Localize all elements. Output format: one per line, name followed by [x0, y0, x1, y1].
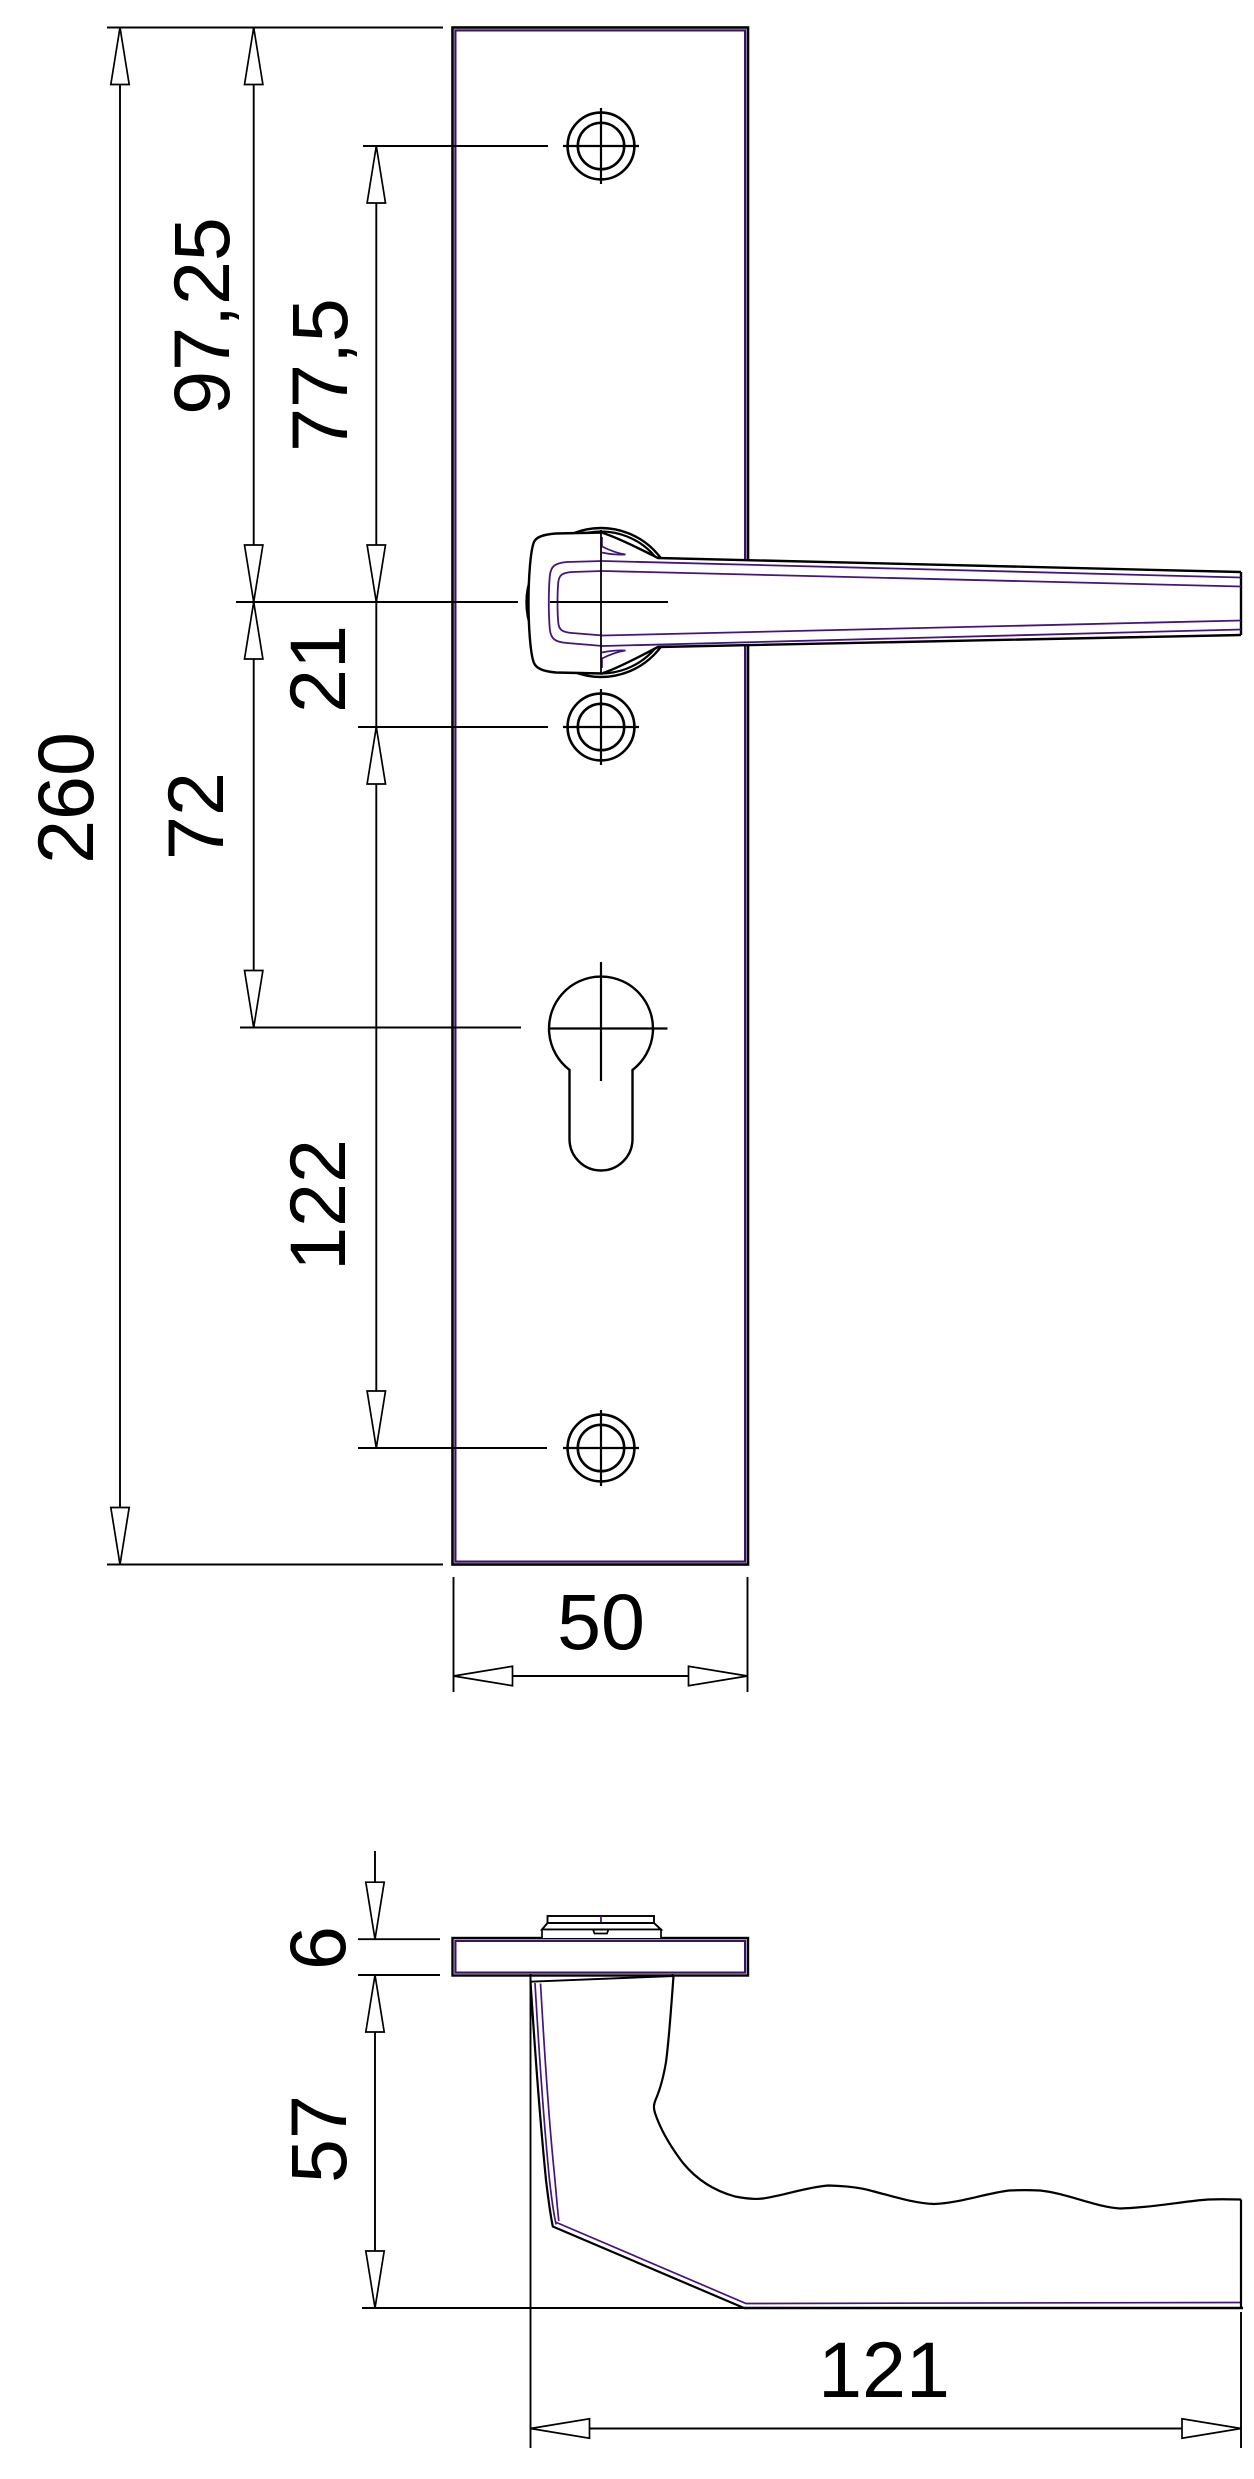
- svg-text:21: 21: [273, 625, 362, 713]
- svg-text:260: 260: [21, 732, 110, 864]
- svg-text:57: 57: [274, 2095, 363, 2183]
- svg-text:72: 72: [151, 772, 240, 860]
- svg-text:121: 121: [818, 2325, 950, 2414]
- svg-text:50: 50: [557, 1577, 645, 1666]
- svg-text:6: 6: [273, 1926, 362, 1970]
- svg-text:77,5: 77,5: [275, 298, 364, 452]
- svg-text:97,25: 97,25: [157, 217, 246, 415]
- svg-text:122: 122: [273, 1139, 362, 1271]
